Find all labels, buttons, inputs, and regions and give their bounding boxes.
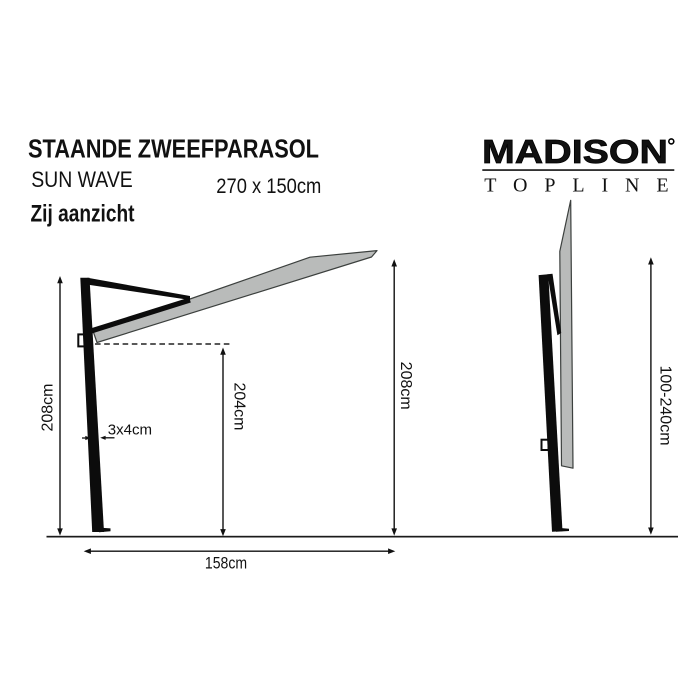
svg-text:208cm: 208cm — [397, 362, 414, 410]
svg-text:208cm: 208cm — [40, 383, 57, 431]
svg-text:MADISON: MADISON — [482, 133, 668, 170]
svg-text:270 x 150cm: 270 x 150cm — [216, 174, 321, 198]
svg-text:Zij aanzicht: Zij aanzicht — [31, 200, 135, 227]
svg-text:STAANDE ZWEEFPARASOL: STAANDE ZWEEFPARASOL — [28, 134, 319, 164]
svg-text:204cm: 204cm — [231, 382, 248, 430]
svg-text:SUN WAVE: SUN WAVE — [31, 167, 133, 192]
svg-text:158cm: 158cm — [205, 553, 247, 572]
svg-text:3x4cm: 3x4cm — [108, 422, 152, 438]
svg-text:100-240cm: 100-240cm — [657, 365, 674, 445]
